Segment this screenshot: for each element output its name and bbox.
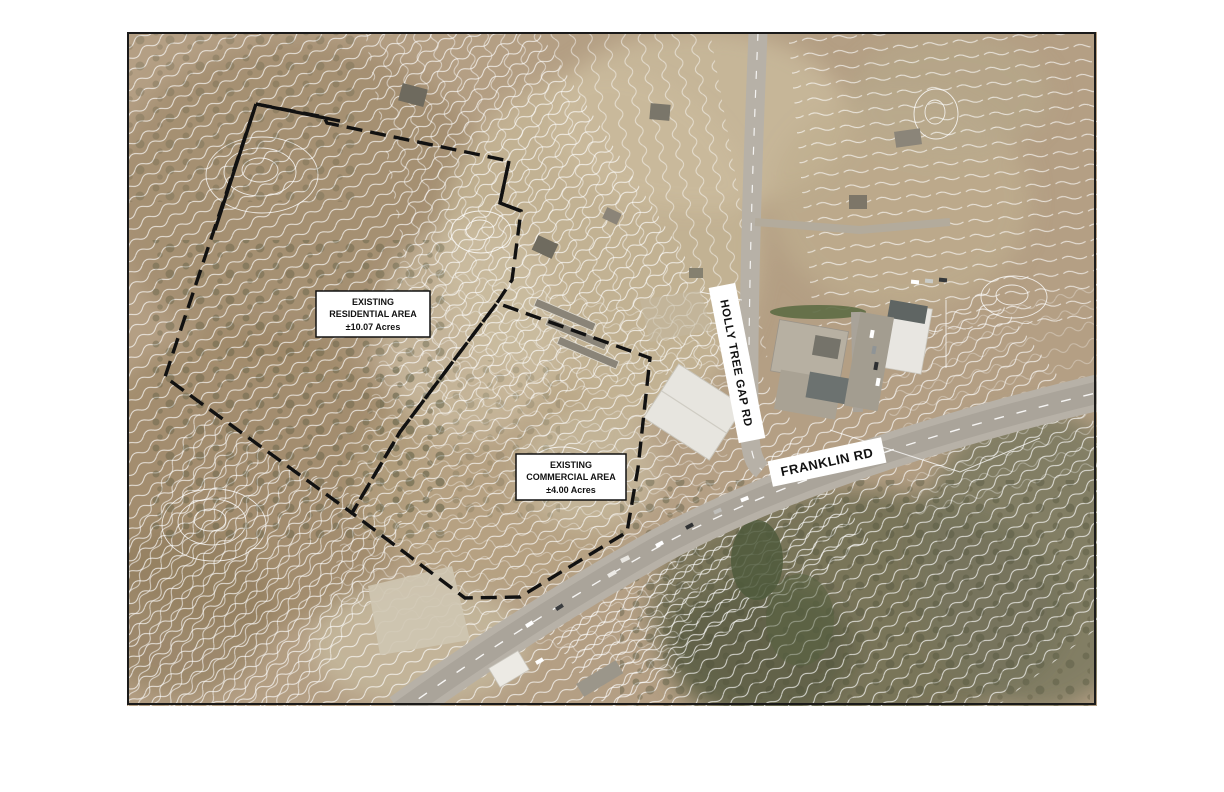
sheet: EXISTING RESIDENTIAL AREA ±10.07 Acres E… bbox=[0, 0, 1224, 792]
title-block: CSDG Planning | Engineering Landscape Ar… bbox=[0, 706, 1224, 792]
commercial-label-line2: COMMERCIAL AREA bbox=[526, 472, 616, 482]
residential-label-line1: EXISTING bbox=[352, 297, 394, 307]
commercial-label-line1: EXISTING bbox=[550, 460, 592, 470]
residential-label-line2: RESIDENTIAL AREA bbox=[329, 309, 417, 319]
aerial-zoning-map: EXISTING RESIDENTIAL AREA ±10.07 Acres E… bbox=[127, 32, 1097, 706]
residential-area-label: EXISTING RESIDENTIAL AREA ±10.07 Acres bbox=[316, 291, 430, 337]
commercial-area-label: EXISTING COMMERCIAL AREA ±4.00 Acres bbox=[516, 454, 626, 500]
residential-label-line3: ±10.07 Acres bbox=[346, 322, 401, 332]
commercial-label-line3: ±4.00 Acres bbox=[546, 485, 596, 495]
